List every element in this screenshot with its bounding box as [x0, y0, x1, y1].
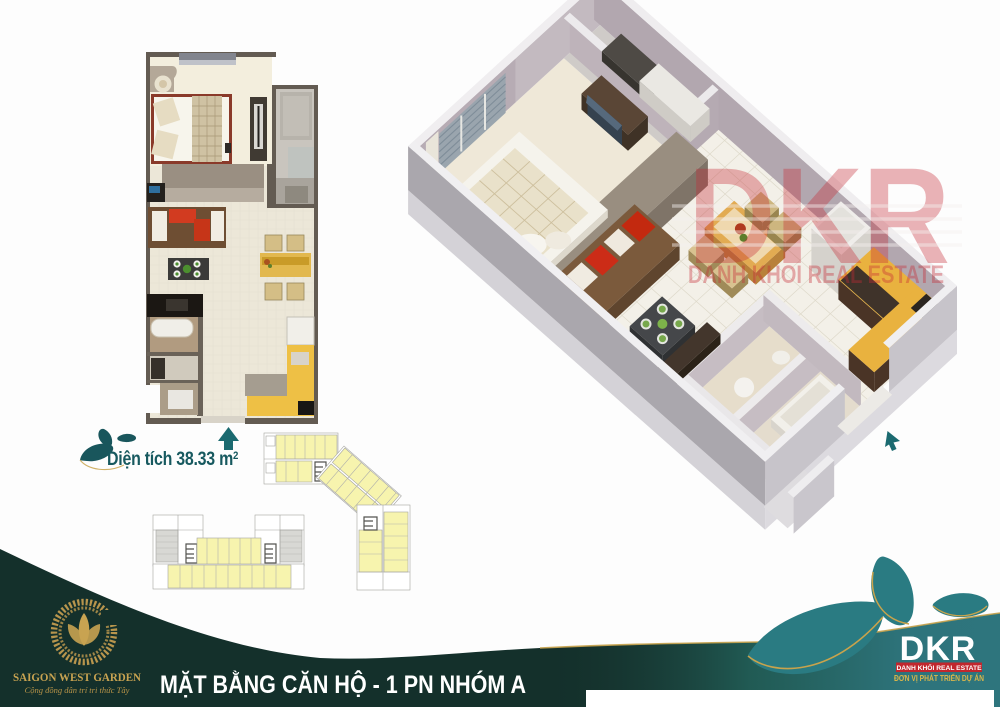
svg-text:Diện tích 38.33 m2: Diện tích 38.33 m2: [107, 448, 238, 470]
svg-text:MẶT BẰNG CĂN HỘ - 1 PN NHÓM A: MẶT BẰNG CĂN HỘ - 1 PN NHÓM A: [160, 669, 526, 699]
svg-text:DANH KHOI REAL ESTATE: DANH KHOI REAL ESTATE: [688, 261, 944, 289]
svg-text:SAIGON WEST GARDEN: SAIGON WEST GARDEN: [13, 670, 141, 684]
svg-text:Cộng đồng dân trí tri thức Tây: Cộng đồng dân trí tri thức Tây: [25, 685, 130, 695]
svg-text:ĐƠN VỊ PHÁT TRIỂN DỰ ÁN: ĐƠN VỊ PHÁT TRIỂN DỰ ÁN: [894, 672, 984, 683]
svg-text:DKR: DKR: [900, 630, 977, 668]
